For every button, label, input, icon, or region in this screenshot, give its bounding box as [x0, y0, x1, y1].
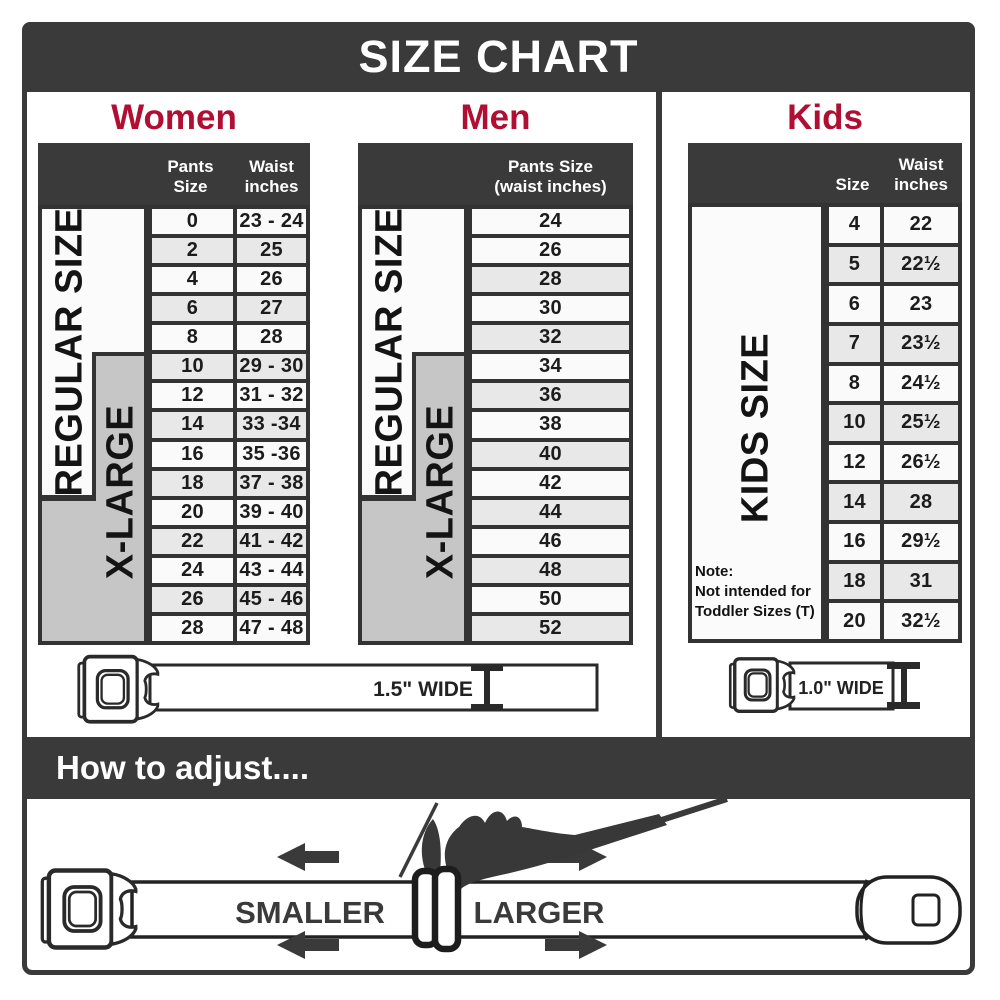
kids-size-table: 422522½623723½824½1025½1226½14281629½183…: [825, 203, 962, 643]
table-cell: 47 - 48: [237, 616, 306, 641]
adjust-heading-bar: How to adjust....: [22, 737, 975, 799]
women-heading: Women: [38, 96, 310, 140]
table-cell: 48: [472, 558, 629, 583]
title-bar: SIZE CHART: [22, 22, 975, 92]
table-cell: 42: [472, 471, 629, 496]
adjust-illustration: SMALLER LARGER: [27, 799, 970, 967]
table-cell: 25: [237, 238, 306, 263]
table-cell: 14: [829, 484, 880, 520]
women-regular-label: REGULAR SIZE: [49, 208, 92, 497]
table-cell: 46: [472, 529, 629, 554]
table-cell: 24: [152, 558, 233, 583]
table-cell: 10: [152, 354, 233, 379]
table-cell: 36: [472, 383, 629, 408]
table-cell: 23 - 24: [237, 209, 306, 234]
table-cell: 8: [152, 325, 233, 350]
table-cell: 32½: [884, 603, 958, 639]
table-cell: 4: [829, 207, 880, 243]
table-cell: 23½: [884, 326, 958, 362]
smaller-label: SMALLER: [235, 895, 385, 930]
table-cell: 26: [472, 238, 629, 263]
table-cell: 6: [829, 286, 880, 322]
kids-col2-header: Waist inches: [880, 143, 962, 203]
table-cell: 10: [829, 405, 880, 441]
seatbelt-buckle-icon: [79, 657, 158, 722]
table-cell: 2: [152, 238, 233, 263]
table-cell: 25½: [884, 405, 958, 441]
arrow-left-icon: [277, 843, 339, 871]
table-cell: 41 - 42: [237, 529, 306, 554]
table-cell: 37 - 38: [237, 471, 306, 496]
men-col-header: Pants Size (waist inches): [468, 143, 633, 205]
page-title: SIZE CHART: [359, 31, 639, 83]
table-cell: 31: [884, 564, 958, 600]
men-heading: Men: [358, 96, 633, 140]
table-cell: 40: [472, 442, 629, 467]
table-cell: 18: [152, 471, 233, 496]
table-cell: 45 - 46: [237, 587, 306, 612]
table-cell: 8: [829, 366, 880, 402]
women-xlarge-label: X-LARGE: [100, 405, 143, 580]
table-cell: 31 - 32: [237, 383, 306, 408]
table-cell: 43 - 44: [237, 558, 306, 583]
table-cell: 22½: [884, 247, 958, 283]
table-cell: 28: [884, 484, 958, 520]
table-cell: 23: [884, 286, 958, 322]
section-divider: [656, 92, 662, 737]
larger-label: LARGER: [474, 895, 605, 930]
belt-adjuster-icon: [415, 869, 458, 949]
table-cell: 18: [829, 564, 880, 600]
table-cell: 32: [472, 325, 629, 350]
adult-belt-graphic: 1.5" WIDE: [30, 650, 650, 750]
table-cell: 28: [472, 267, 629, 292]
table-cell: 26½: [884, 445, 958, 481]
adjust-heading: How to adjust....: [56, 749, 309, 787]
table-cell: 26: [152, 587, 233, 612]
table-cell: 28: [152, 616, 233, 641]
table-cell: 50: [472, 587, 629, 612]
table-cell: 34: [472, 354, 629, 379]
table-cell: 44: [472, 500, 629, 525]
women-col2-header: Waist inches: [233, 143, 310, 205]
table-cell: 0: [152, 209, 233, 234]
table-cell: 20: [152, 500, 233, 525]
seatbelt-buckle-icon: [730, 659, 794, 712]
table-cell: 20: [829, 603, 880, 639]
table-cell: 38: [472, 412, 629, 437]
table-cell: 7: [829, 326, 880, 362]
kids-heading: Kids: [688, 96, 962, 140]
men-size-table: 242628303234363840424446485052: [468, 205, 633, 645]
table-cell: 6: [152, 296, 233, 321]
table-cell: 52: [472, 616, 629, 641]
seatbelt-buckle-icon: [42, 871, 136, 948]
table-cell: 5: [829, 247, 880, 283]
kids-note: Note: Not intended for Toddler Sizes (T): [695, 562, 823, 621]
table-cell: 33 -34: [237, 412, 306, 437]
table-cell: 24: [472, 209, 629, 234]
women-size-table: 023 - 242254266278281029 - 301231 - 3214…: [148, 205, 310, 645]
belt-tip-icon: [857, 877, 960, 943]
table-cell: 29½: [884, 524, 958, 560]
table-cell: 4: [152, 267, 233, 292]
kids-belt-graphic: 1.0" WIDE: [690, 650, 980, 750]
table-cell: 14: [152, 412, 233, 437]
size-chart-page: SIZE CHART Women Men Kids Pants Size Wai…: [0, 0, 1000, 1000]
table-cell: 30: [472, 296, 629, 321]
table-cell: 12: [829, 445, 880, 481]
table-cell: 28: [237, 325, 306, 350]
table-cell: 27: [237, 296, 306, 321]
table-cell: 35 -36: [237, 442, 306, 467]
table-cell: 12: [152, 383, 233, 408]
kids-col1-header: Size: [825, 143, 880, 203]
table-cell: 24½: [884, 366, 958, 402]
men-xlarge-label: X-LARGE: [420, 405, 463, 580]
table-cell: 22: [152, 529, 233, 554]
kids-belt-width-label: 1.0" WIDE: [798, 678, 884, 698]
table-cell: 26: [237, 267, 306, 292]
men-regular-label: REGULAR SIZE: [369, 208, 412, 497]
table-cell: 39 - 40: [237, 500, 306, 525]
adult-belt-width-label: 1.5" WIDE: [373, 678, 473, 701]
kids-size-label: KIDS SIZE: [735, 333, 778, 523]
table-cell: 22: [884, 207, 958, 243]
table-cell: 29 - 30: [237, 354, 306, 379]
women-col1-header: Pants Size: [148, 143, 233, 205]
table-cell: 16: [829, 524, 880, 560]
table-cell: 16: [152, 442, 233, 467]
